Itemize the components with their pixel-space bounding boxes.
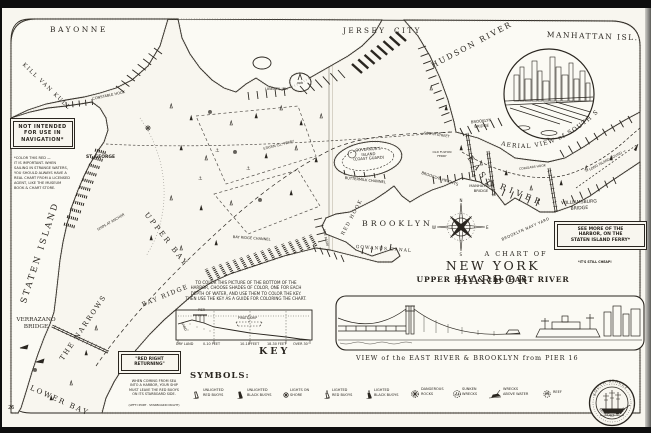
key-ship-label: PIRATE SHIP bbox=[238, 317, 257, 321]
scanned-chart-page: AERIAL VIEW of SOUTH STREET SOUTH STREET… bbox=[0, 0, 651, 433]
right-page-number: 27 bbox=[616, 411, 622, 417]
black-buoy-unlighted-label: UNLIGHTED BLACK BUOYS bbox=[247, 388, 272, 397]
wreck-above-water-label: WRECKS ABOVE WATER bbox=[503, 387, 528, 396]
red-buoy-lighted-label: LIGHTED RED BUOYS bbox=[332, 388, 352, 397]
red-right-returning-note: WHEN COMING FROM SEA INTO A HARBOR, YOUR… bbox=[114, 379, 194, 397]
label-18-30-feet: 18-30 FEET bbox=[267, 343, 286, 347]
svg-text:⚓: ⚓ bbox=[215, 148, 219, 154]
svg-text:⚓: ⚓ bbox=[246, 166, 250, 172]
left-page-number: 26 bbox=[8, 406, 14, 412]
label-brooklyn: BROOKLYN bbox=[362, 220, 433, 229]
anchorage-symbols: ⚓⚓⚓ bbox=[198, 148, 250, 182]
label-10-18-feet: 10-18 FEET bbox=[240, 343, 259, 347]
label-bayonne: BAYONNE bbox=[50, 26, 108, 35]
dangerous-rocks-label: DANGEROUS ROCKS bbox=[421, 387, 444, 396]
key-pier-label: PIER bbox=[198, 309, 205, 313]
red-right-returning-title: "RED RIGHT RETURNING" bbox=[121, 354, 179, 372]
harbor-chart-drawing: AERIAL VIEW of SOUTH STREET SOUTH STREET… bbox=[0, 0, 651, 433]
label-st-george: ST. GEORGE bbox=[86, 155, 115, 160]
not-for-navigation-text: NOT INTENDED FOR USE IN NAVIGATION* bbox=[13, 121, 73, 147]
label-governor-s-island-coast-guard: GOVERNOR'S ISLAND (COAST GUARD) bbox=[347, 146, 390, 163]
reef-label: REEF bbox=[553, 390, 562, 395]
black-buoy-lighted-label: LIGHTED BLACK BUOYS bbox=[374, 388, 399, 397]
not-for-navigation-box: NOT INTENDED FOR USE IN NAVIGATION* bbox=[10, 118, 75, 149]
key-instructions: TO COLOR THIS PICTURE OF THE BOTTOM OF T… bbox=[178, 280, 314, 301]
staten-island-ferry-ad-box: SEE MORE OF THE HARBOR, ON THE STATEN IS… bbox=[554, 221, 647, 250]
symbols-heading: SYMBOLS: bbox=[190, 372, 250, 382]
label-city: CITY bbox=[394, 27, 422, 35]
chart-title-sub: UPPER BAY & the EAST RIVER bbox=[407, 276, 579, 285]
label-0-10-feet: 0-10 FEET bbox=[203, 343, 220, 347]
red-buoy-unlighted-label: UNLIGHTED RED BUOYS bbox=[203, 388, 224, 397]
label-manhattan-bridge: MANHATTAN BRIDGE bbox=[464, 184, 498, 193]
svg-text:⚓: ⚓ bbox=[198, 176, 202, 182]
label-liberty-isl: LIBERTY ISL. bbox=[265, 87, 288, 91]
label-old-fulton-ferry: OLD FULTON FERRY bbox=[431, 151, 453, 158]
shore-light-label: LIGHTS ON SHORE bbox=[290, 388, 309, 397]
panorama-panel bbox=[336, 296, 644, 350]
sunken-wreck-label: SUNKEN WRECKS bbox=[462, 387, 477, 396]
svg-text:N: N bbox=[460, 198, 463, 203]
key-heading: KEY bbox=[259, 347, 290, 358]
red-right-returning-footnote: (LEFT=PORT · STARBOARD=RIGHT) bbox=[114, 403, 194, 407]
label-verrazano-bridge: VERRAZANO BRIDGE bbox=[14, 317, 58, 331]
label-over-30: OVER 30' bbox=[293, 343, 309, 347]
color-this-red-note: *COLOR THIS RED — IT IS IMPORTANT. WHEN … bbox=[14, 156, 90, 191]
red-right-returning-box: "RED RIGHT RETURNING" bbox=[118, 351, 181, 374]
label-dry-land: DRY LAND bbox=[176, 343, 193, 347]
ferry-ad-footnote: *IT'S STILL CHEAP! bbox=[578, 260, 612, 264]
label-jersey: JERSEY bbox=[343, 27, 386, 35]
panorama-caption: VIEW of the EAST RIVER & BROOKLYN from P… bbox=[356, 355, 579, 362]
staten-island-ferry-ad-text: SEE MORE OF THE HARBOR, ON THE STATEN IS… bbox=[557, 224, 645, 248]
